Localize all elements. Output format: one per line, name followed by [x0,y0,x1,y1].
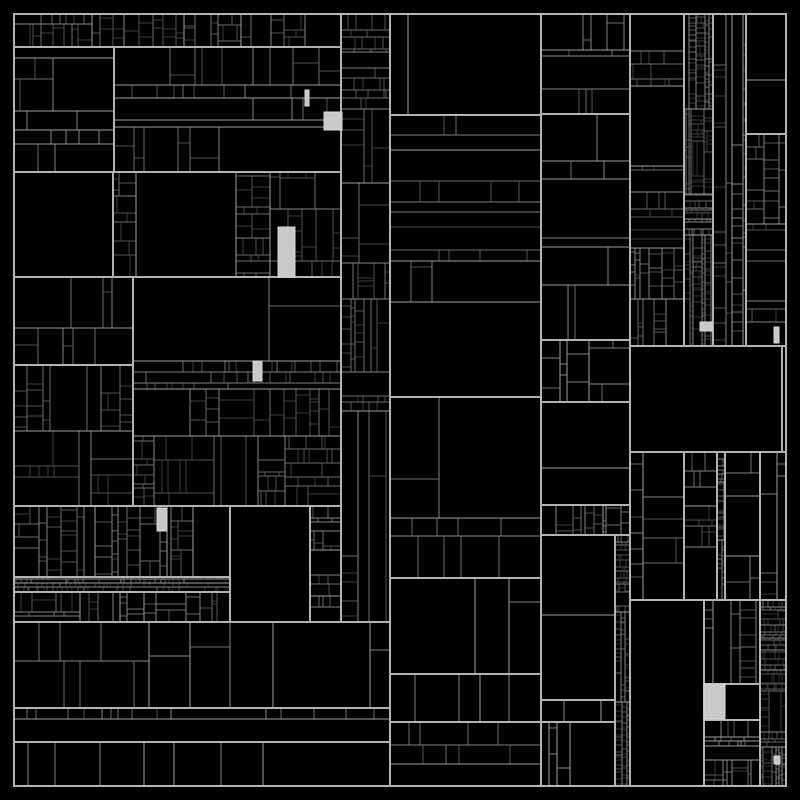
selected-cell[interactable] [278,227,295,277]
selected-cell[interactable] [324,112,342,130]
selected-cell[interactable] [774,327,779,343]
selected-cell[interactable] [253,361,262,381]
selected-cell[interactable] [157,508,167,531]
treemap-app [0,0,800,800]
selected-cell[interactable] [774,756,780,764]
selected-cell[interactable] [704,684,725,719]
selected-cell[interactable] [305,90,309,106]
treemap-canvas[interactable] [0,0,800,800]
selected-cell[interactable] [700,322,712,331]
